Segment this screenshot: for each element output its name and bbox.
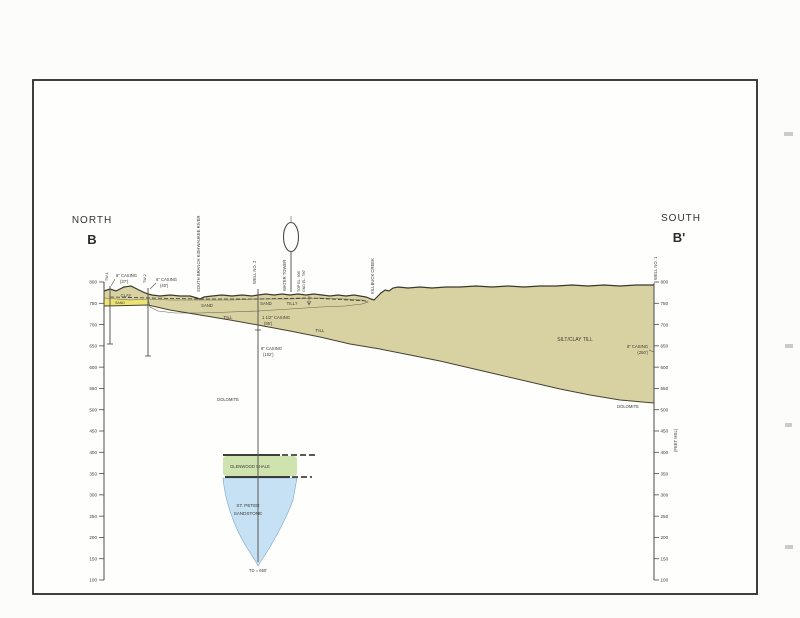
elevation-tick-label: 450 (661, 429, 669, 434)
elevation-tick-label: 800 (89, 280, 97, 285)
scan-artifact (785, 344, 793, 348)
section-point-b-prime: B' (673, 230, 685, 245)
well-1-casing: 6" CASING (116, 273, 137, 278)
south-well-casing-depth: (250') (637, 350, 648, 355)
section-point-b: B (87, 232, 96, 247)
elevation-tick-label: 300 (89, 493, 97, 498)
till-label-1: TILL (223, 315, 233, 320)
scan-artifact (784, 132, 793, 136)
elevation-tick-label: 550 (89, 386, 97, 391)
till-query-label: TILL? (287, 301, 298, 306)
well-2-casing-depth: (40') (160, 283, 169, 288)
elevation-tick-label: 250 (89, 514, 97, 519)
sand-lens-label-1: SAND (201, 303, 213, 308)
municipal-casing-1: 1 1/2" CASING (262, 315, 290, 320)
axis-unit-note: (FEET MSL) (673, 428, 678, 452)
sandstone-label-line2: SANDSTONE (234, 511, 263, 516)
south-label: SOUTH (661, 213, 701, 224)
elevation-tick-label: 150 (661, 556, 669, 561)
water-tower-tank (284, 223, 299, 252)
elevation-tick-label: 400 (661, 450, 669, 455)
south-well-casing: 8" CASING (627, 344, 648, 349)
tower-top-elevation: TOP EL. 908' (297, 270, 301, 292)
elevation-tick-label: 100 (661, 578, 669, 583)
river-label: SOUTH BRANCH KISHWAUKEE RIVER (196, 216, 201, 292)
sand-lens-label-2: SAND (260, 301, 272, 306)
scan-artifact (785, 545, 793, 549)
elevation-tick-label: 600 (89, 365, 97, 370)
elevation-tick-label: 650 (661, 344, 669, 349)
north-label: NORTH (72, 215, 112, 226)
elevation-tick-label: 350 (661, 471, 669, 476)
municipal-casing-2-depth: (102') (263, 352, 274, 357)
elevation-tick-label: 700 (661, 322, 669, 327)
elevation-tick-label: 550 (661, 386, 669, 391)
elevation-tick-label: 600 (661, 365, 669, 370)
elevation-tick-label: 700 (89, 322, 97, 327)
elevation-tick-label: 350 (89, 471, 97, 476)
elevation-tick-label: 200 (89, 535, 97, 540)
dolomite-label-2: DOLOMITE (617, 404, 639, 409)
elevation-tick-label: 500 (89, 407, 97, 412)
total-depth-label: TD = 650' (249, 568, 267, 573)
cross-section-figure: NORTH B SOUTH B' 80075070065060055050045… (0, 0, 800, 618)
municipal-casing-2: 8" CASING (261, 346, 282, 351)
scan-artifact (785, 423, 792, 427)
sand-left-label: SAND (115, 301, 125, 305)
dolomite-label-1: DOLOMITE (217, 397, 239, 402)
elevation-tick-label: 300 (661, 493, 669, 498)
elevation-tick-label: 150 (89, 556, 97, 561)
silt-clay-till-label: SILT/CLAY TILL (557, 337, 593, 343)
elevation-tick-label: 750 (661, 301, 669, 306)
well-1-id: TW-1 (105, 272, 109, 281)
municipal-casing-1-depth: (95') (264, 321, 273, 326)
well-2-id: TW-2 (143, 274, 147, 283)
municipal-well-id: WELL NO. 2 (252, 260, 257, 284)
elevation-tick-label: 500 (661, 407, 669, 412)
elevation-tick-label: 650 (89, 344, 97, 349)
south-well-id: WELL NO. 1 (653, 256, 658, 280)
elevation-tick-label: 400 (89, 450, 97, 455)
shale-label: GLENWOOD SHALE (230, 464, 270, 469)
elevation-tick-label: 800 (661, 280, 669, 285)
elevation-tick-label: 100 (89, 578, 97, 583)
water-tower-label: WATER TOWER (282, 260, 287, 291)
tower-ground-elevation: GND EL. 790' (302, 270, 306, 292)
well-1-casing-depth: (37') (120, 279, 129, 284)
clay-label: CLAY (121, 293, 132, 298)
sandstone-label-line1: ST. PETER (236, 503, 260, 508)
creek-label: KILLBUCK CREEK (370, 258, 375, 294)
elevation-tick-label: 450 (89, 429, 97, 434)
well-2-casing: 6" CASING (156, 277, 177, 282)
scanned-cross-section-page: { "header": { "north_label": "NORTH", "n… (0, 0, 800, 618)
elevation-tick-label: 200 (661, 535, 669, 540)
elevation-tick-label: 750 (89, 301, 97, 306)
elevation-tick-label: 250 (661, 514, 669, 519)
till-label-2: TILL (315, 328, 325, 333)
